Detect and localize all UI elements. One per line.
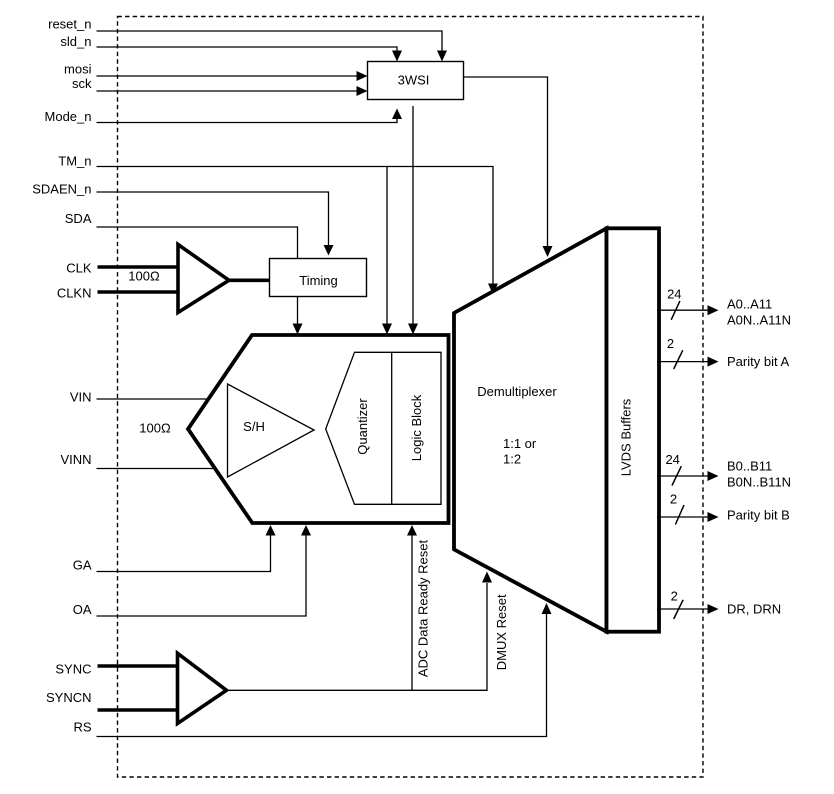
svg-text:VIN: VIN [70, 390, 92, 405]
svg-text:SDAEN_n: SDAEN_n [32, 182, 91, 197]
svg-text:Quantizer: Quantizer [355, 398, 370, 455]
svg-text:TM_n: TM_n [58, 154, 91, 169]
svg-text:2: 2 [671, 589, 678, 604]
svg-text:A0N..A11N: A0N..A11N [727, 313, 791, 328]
svg-text:B0..B11: B0..B11 [727, 458, 772, 473]
svg-text:sld_n: sld_n [60, 34, 91, 49]
svg-text:RS: RS [73, 720, 91, 735]
svg-text:1:1 or: 1:1 or [503, 436, 537, 451]
svg-text:Parity bit A: Parity bit A [727, 354, 789, 369]
svg-text:CLKN: CLKN [57, 286, 92, 301]
svg-text:reset_n: reset_n [48, 17, 91, 32]
svg-text:LVDS Buffers: LVDS Buffers [619, 398, 634, 476]
svg-text:ADC Data Ready Reset: ADC Data Ready Reset [416, 539, 431, 677]
svg-text:Logic Block: Logic Block [409, 394, 424, 461]
svg-text:SYNCN: SYNCN [46, 690, 92, 705]
svg-text:1:2: 1:2 [503, 452, 521, 467]
svg-text:24: 24 [667, 287, 681, 302]
svg-text:2: 2 [667, 336, 674, 351]
svg-text:24: 24 [665, 452, 679, 467]
svg-text:GA: GA [73, 558, 92, 573]
svg-text:DMUX Reset: DMUX Reset [494, 594, 509, 670]
svg-text:SYNC: SYNC [55, 662, 91, 677]
svg-text:3WSI: 3WSI [398, 72, 430, 87]
svg-text:2: 2 [670, 492, 677, 507]
svg-text:A0..A11: A0..A11 [727, 296, 772, 311]
svg-text:100Ω: 100Ω [128, 269, 160, 284]
svg-text:Parity bit B: Parity bit B [727, 507, 790, 522]
svg-text:CLK: CLK [66, 261, 92, 276]
svg-text:DR, DRN: DR, DRN [727, 601, 781, 616]
svg-text:B0N..B11N: B0N..B11N [727, 475, 791, 490]
svg-text:mosi: mosi [64, 62, 92, 77]
svg-text:Demultiplexer: Demultiplexer [477, 384, 557, 399]
svg-text:Timing: Timing [299, 273, 338, 288]
svg-text:SDA: SDA [65, 211, 92, 226]
svg-text:Mode_n: Mode_n [45, 109, 92, 124]
svg-text:S/H: S/H [243, 419, 265, 434]
svg-text:100Ω: 100Ω [139, 421, 171, 436]
svg-text:sck: sck [72, 76, 92, 91]
svg-text:OA: OA [73, 602, 92, 617]
svg-text:VINN: VINN [60, 452, 91, 467]
